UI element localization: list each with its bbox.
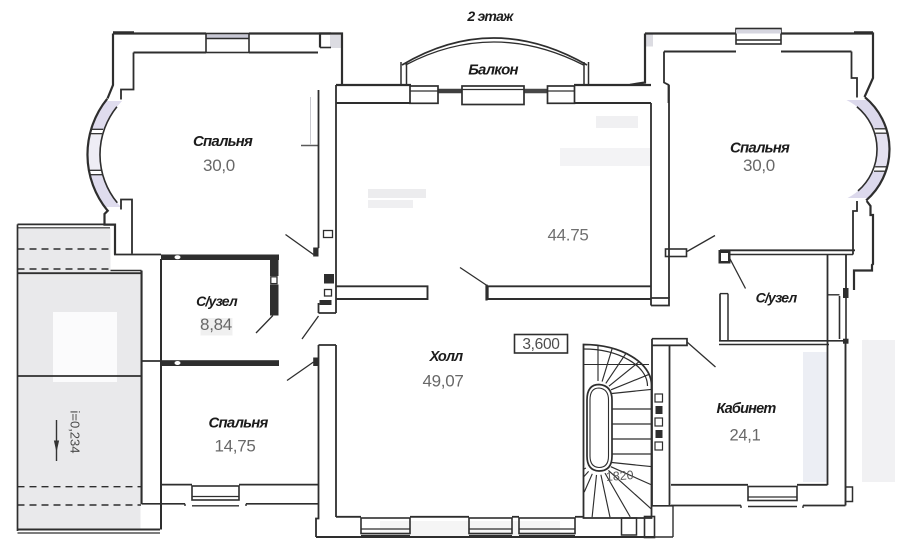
- svg-text:30,0: 30,0: [743, 156, 775, 175]
- svg-text:С/узел: С/узел: [756, 290, 798, 306]
- svg-text:Спальня: Спальня: [193, 133, 253, 150]
- svg-text:Спальня: Спальня: [730, 140, 790, 157]
- svg-text:44.75: 44.75: [547, 226, 588, 245]
- svg-text:Холл: Холл: [429, 349, 464, 365]
- svg-text:30,0: 30,0: [203, 156, 235, 175]
- svg-text:8,84: 8,84: [200, 315, 232, 334]
- svg-text:i=0,234: i=0,234: [68, 410, 83, 453]
- svg-text:Спальня: Спальня: [208, 415, 268, 432]
- svg-text:С/узел: С/узел: [196, 293, 238, 309]
- svg-text:24,1: 24,1: [730, 427, 761, 445]
- svg-text:3,600: 3,600: [522, 336, 560, 353]
- svg-text:2 этаж: 2 этаж: [466, 8, 514, 24]
- svg-text:Балкон: Балкон: [468, 62, 518, 79]
- svg-text:Кабинет: Кабинет: [717, 401, 777, 417]
- svg-text:49,07: 49,07: [422, 372, 463, 391]
- svg-text:1820: 1820: [605, 468, 634, 484]
- svg-text:14,75: 14,75: [214, 437, 255, 456]
